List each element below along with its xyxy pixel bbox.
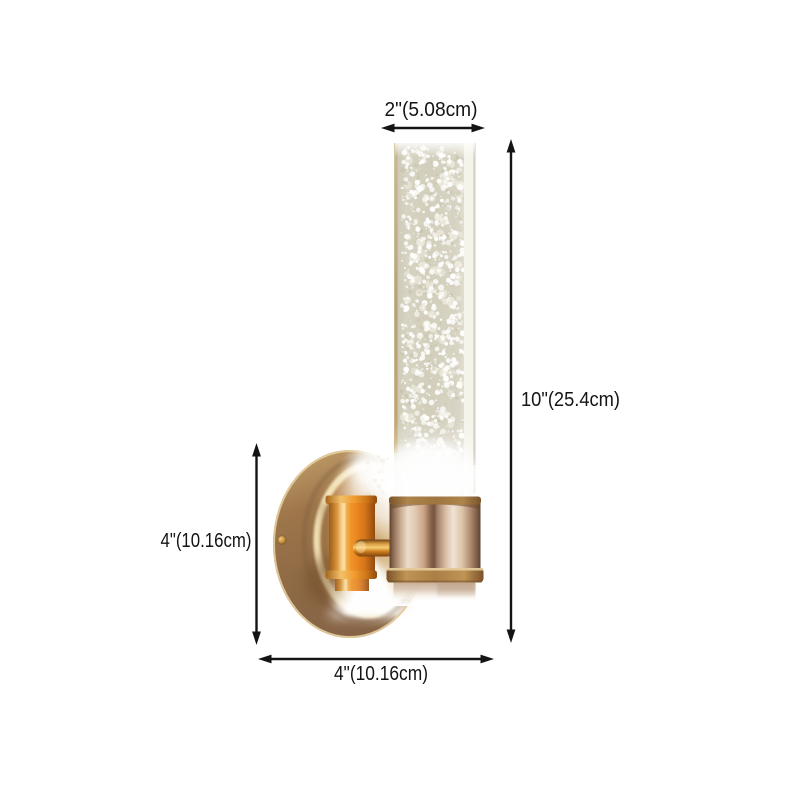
svg-text:4"(10.16cm): 4"(10.16cm) <box>334 663 428 685</box>
svg-text:4"(10.16cm): 4"(10.16cm) <box>161 530 252 552</box>
svg-text:10"(25.4cm): 10"(25.4cm) <box>521 389 620 411</box>
svg-text:2"(5.08cm): 2"(5.08cm) <box>385 99 478 121</box>
